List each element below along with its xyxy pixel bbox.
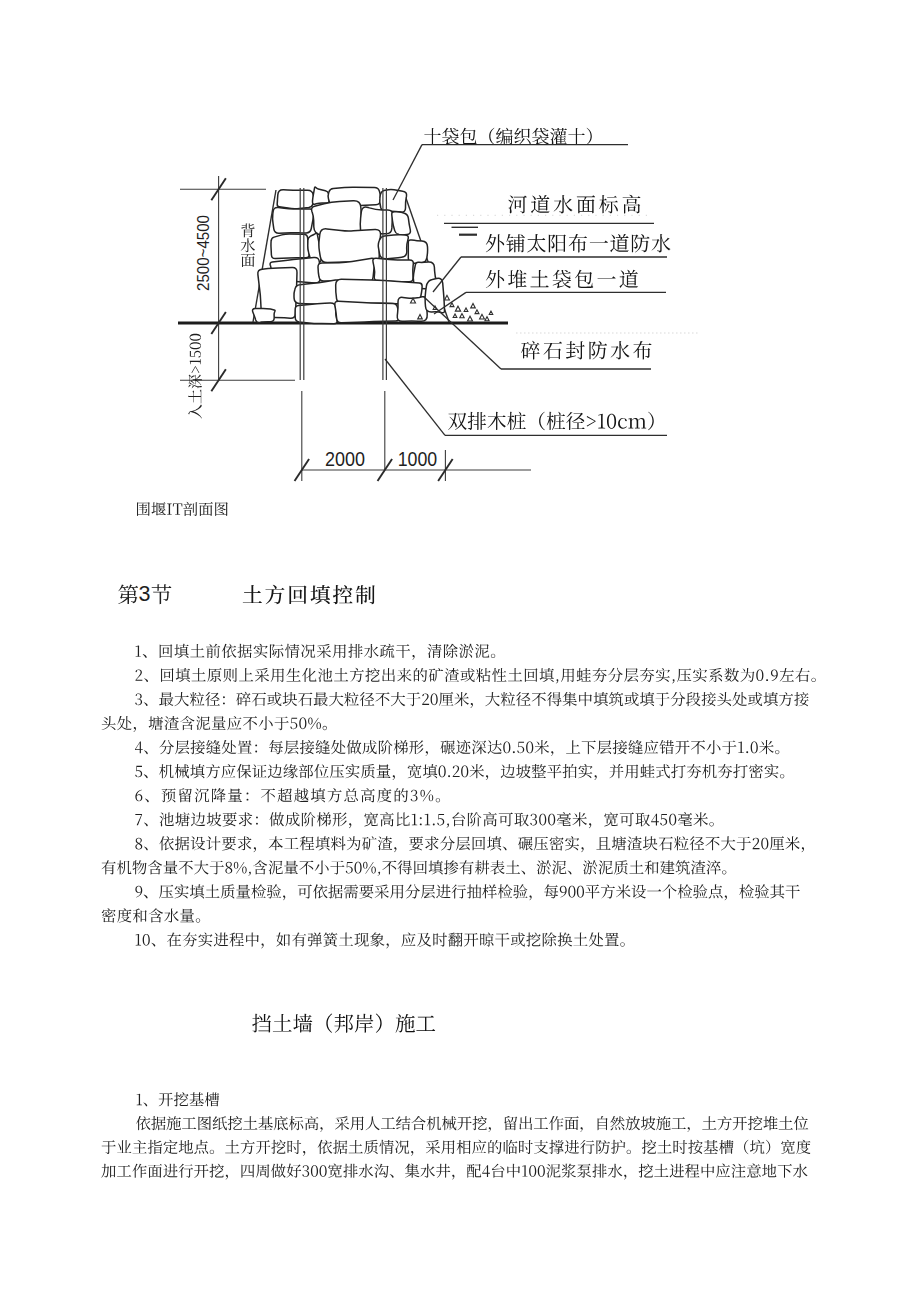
svg-text:2500~4500: 2500~4500 — [194, 215, 213, 291]
svg-text:2000: 2000 — [325, 447, 365, 470]
svg-text:3: 3 — [139, 582, 151, 606]
svg-text:1000: 1000 — [398, 447, 438, 470]
